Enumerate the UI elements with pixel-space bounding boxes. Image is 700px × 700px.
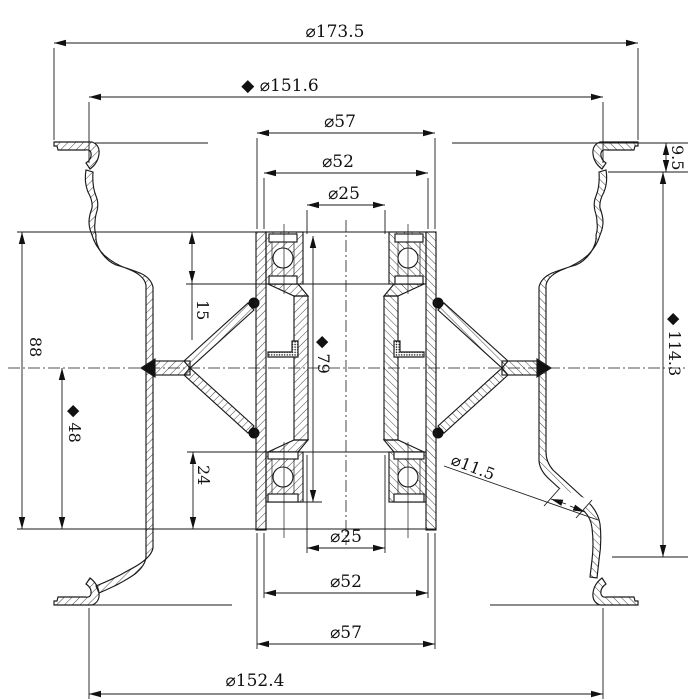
dim-rim-width: ◆ 114.3: [665, 313, 684, 376]
rim-left-band: [85, 170, 153, 593]
centerlines: [8, 220, 688, 545]
dim-hub-flange-diameter-bottom: ⌀57: [330, 623, 362, 643]
dim-overall-diameter-top: ⌀173.5: [306, 22, 365, 42]
dim-hub-flange-diameter-top: ⌀57: [324, 112, 356, 132]
dim-bore-diameter-top: ⌀25: [328, 184, 360, 204]
retainer-bracket-left: [268, 341, 298, 357]
rim-left-section: [54, 142, 153, 605]
dim-bearing-seat-depth-top: 15: [193, 300, 212, 320]
dimension-labels: ⌀173.5 ◆ ⌀151.6 ⌀57 ⌀52 ⌀25 88 15 ◆ 48 2…: [26, 22, 687, 691]
dim-bearing-seat-depth-bottom: 24: [194, 465, 213, 485]
dim-hub-body-diameter-top: ⌀52: [322, 152, 354, 172]
technical-drawing-canvas: ⌀173.5 ◆ ⌀151.6 ⌀57 ⌀52 ⌀25 88 15 ◆ 48 2…: [0, 0, 700, 700]
extension-lines: [17, 48, 688, 699]
rim-right-flange-top: [593, 142, 638, 169]
rim-right-band: [539, 170, 607, 578]
bearing-ball: [273, 467, 293, 487]
dim-bead-diameter-top: ◆ ⌀151.6: [241, 76, 318, 96]
dim-valve-hole-diameter: ⌀11.5: [449, 450, 498, 484]
dim-hub-length: 88: [26, 337, 45, 357]
hub-wall-right: [426, 232, 436, 530]
dim-bead-diameter-bottom: ⌀152.4: [226, 671, 285, 691]
rim-right-section: [539, 142, 638, 605]
dim-flange-drop: 9.5: [668, 145, 687, 170]
valve-hole-cutout: [544, 488, 592, 518]
hub-wall-left: [256, 232, 266, 530]
dim-bore-diameter-bottom: ⌀25: [330, 527, 362, 547]
dimension-lines: [22, 43, 666, 694]
dim-hub-half-length: ◆ 48: [65, 405, 84, 443]
retainer-bracket-right: [394, 341, 424, 357]
dim-bearing-span: ◆ 79: [314, 336, 333, 374]
dim-hub-body-diameter-bottom: ⌀52: [330, 572, 362, 592]
rim-left-flange-top: [54, 142, 99, 169]
rim-right-flange-bottom: [593, 578, 638, 605]
bearing-ball: [273, 248, 293, 268]
rim-left-flange-bottom: [54, 578, 99, 605]
wheel-hub-section-drawing: ⌀173.5 ◆ ⌀151.6 ⌀57 ⌀52 ⌀25 88 15 ◆ 48 2…: [0, 0, 700, 700]
